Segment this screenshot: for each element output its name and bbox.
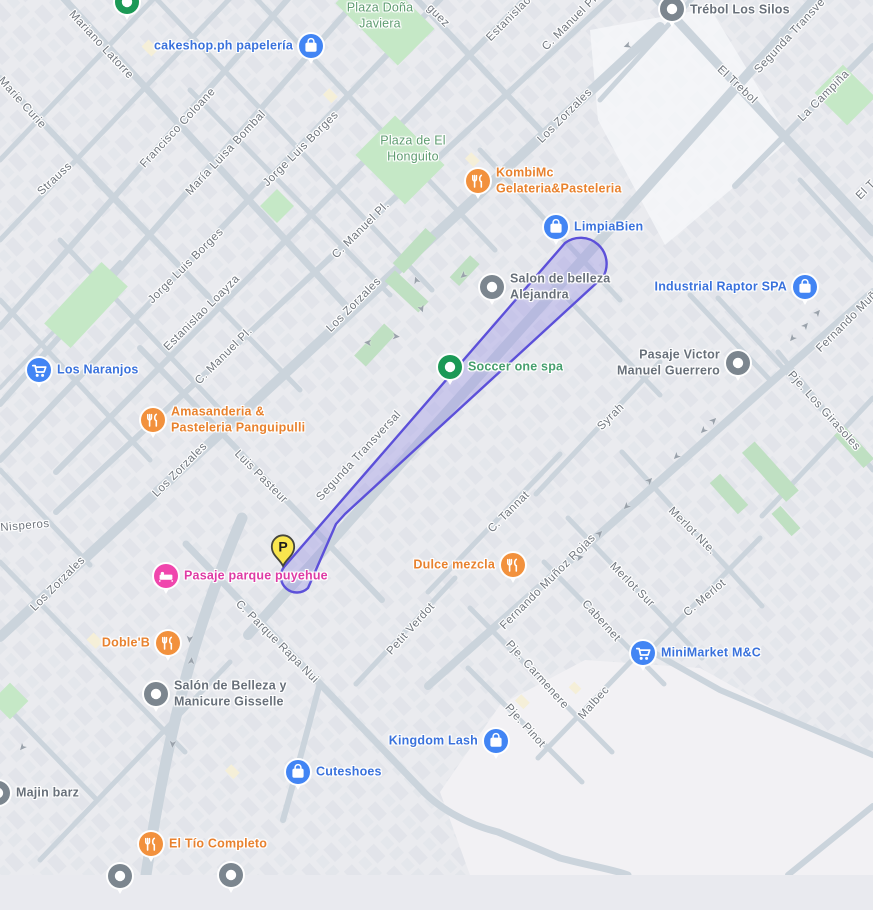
parking-pin-letter: P <box>278 539 287 555</box>
base-map <box>0 0 873 875</box>
map-canvas[interactable]: Mariano LatorreMarie CurieStraussFrancis… <box>0 0 873 875</box>
parking-pin[interactable]: P <box>266 530 300 574</box>
